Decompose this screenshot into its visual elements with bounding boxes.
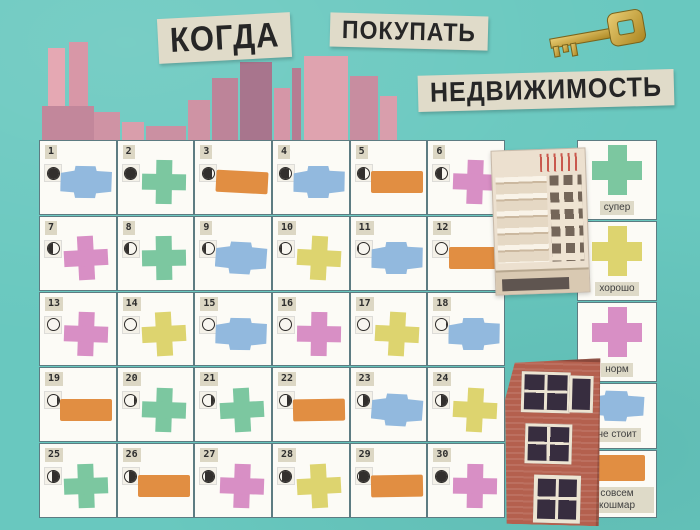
day-cell: 4 [273,141,349,214]
moon-phase-icon [123,392,139,408]
title-word-kogda: КОГДА [157,12,292,64]
day-cell: 27 [195,444,271,517]
skyline-building [350,76,378,142]
skyline-building [380,96,397,142]
skyline-building [122,122,144,142]
day-cell: 26 [118,444,194,517]
house-window [521,371,571,414]
rating-shape-cross [374,311,420,357]
moon-phase-icon [356,241,372,257]
key-icon [541,0,654,79]
moon-phase-icon [356,165,372,181]
moon-phase-icon [200,241,216,257]
day-cell: 3 [195,141,271,214]
moon-phase-icon [278,392,294,408]
day-cell: 19 [40,368,116,441]
moon-phase-icon [278,468,294,484]
day-cell: 14 [118,293,194,366]
moon-phase-icon [356,317,372,333]
legend-label: хорошо [595,282,638,296]
rating-shape-cross [141,387,187,433]
day-number: 4 [278,145,290,159]
skyline-building [212,78,238,142]
moon-phase-icon [45,317,61,333]
moon-phase-icon [123,317,139,333]
rating-shape-rect [60,399,112,421]
legend-label: не стоит [593,428,640,442]
moon-phase-icon [278,165,294,181]
moon-phase-icon [433,317,449,333]
day-cell: 1 [40,141,116,214]
rating-shape-blob [60,165,113,200]
skyline-building [188,100,210,142]
rating-shape-cross [63,235,109,281]
moon-phase-icon [200,468,216,484]
day-cell: 18 [428,293,504,366]
moon-phase-icon [433,392,449,408]
skyline-building [42,106,94,142]
moon-phase-icon [200,165,216,181]
rating-shape-cross [64,311,110,357]
moon-phase-icon [433,165,449,181]
rating-shape-cross [592,226,642,276]
day-cell: 28 [273,444,349,517]
house-window [533,474,581,524]
rating-shape-blob [215,317,268,352]
day-cell: 24 [428,368,504,441]
moon-phase-icon [200,317,216,333]
moon-phase-icon [123,468,139,484]
moon-phase-icon [45,392,61,408]
legend-label: супер [600,201,635,215]
building-ground-floor [496,267,590,294]
legend-label: норм [601,363,633,377]
day-cell: 7 [40,217,116,290]
moon-phase-icon [356,468,372,484]
day-number: 2 [123,145,135,159]
calendar-grid: 1234567891011121314151617181920212223242… [40,141,504,517]
rating-shape-rect [293,398,345,421]
day-cell: 17 [351,293,427,366]
building-storefront [502,277,569,291]
rating-shape-cross [297,312,342,357]
poster: КОГДА ПОКУПАТЬ НЕДВИЖИМОСТЬ 123456789101… [0,0,700,530]
day-number: 5 [356,145,368,159]
rating-shape-rect [449,247,501,269]
day-cell: 5 [351,141,427,214]
rating-shape-blob [292,164,346,200]
house-window [525,423,573,464]
moon-phase-icon [433,241,449,257]
rating-shape-blob [215,241,268,276]
title-word-nedvizhimost: НЕДВИЖИМОСТЬ [418,69,675,112]
moon-phase-icon [45,241,61,257]
moon-phase-icon [278,241,294,257]
house-window [569,376,594,413]
rating-shape-cross [296,235,342,281]
day-cell: 22 [273,368,349,441]
rating-shape-cross [592,145,642,195]
moon-phase-icon [45,468,61,484]
moon-phase-icon [433,468,449,484]
skyline-building [240,62,272,142]
rating-shape-cross [296,462,342,508]
day-cell: 21 [195,368,271,441]
title-word-pokupat: ПОКУПАТЬ [330,12,489,50]
moon-phase-icon [356,392,372,408]
skyline-building [94,112,120,142]
rating-shape-blob [370,240,424,276]
day-number: 6 [433,145,445,159]
brick-house-photo [502,356,603,526]
day-number: 7 [45,221,57,235]
rating-shape-cross [142,236,187,281]
day-cell: 11 [351,217,427,290]
day-number: 1 [45,145,57,159]
day-number: 8 [123,221,135,235]
skyline-building [146,126,186,142]
rating-shape-cross [452,463,497,508]
legend-item: супер [578,141,656,219]
building-sign [540,153,580,172]
moon-phase-icon [278,317,294,333]
day-cell: 23 [351,368,427,441]
rating-shape-cross [219,463,265,509]
skyline-building [304,56,348,142]
day-cell: 25 [40,444,116,517]
rating-shape-cross [219,387,265,433]
skyline-building [292,68,301,142]
rating-shape-rect [215,170,268,195]
rating-shape-cross [141,311,187,357]
rating-shape-blob [448,316,502,352]
rating-shape-cross [142,160,187,205]
rating-shape-rect [138,475,190,497]
apartment-building-photo [490,147,590,295]
moon-phase-icon [123,241,139,257]
rating-shape-cross [64,463,110,509]
day-cell: 8 [118,217,194,290]
moon-phase-icon [200,392,216,408]
moon-phase-icon [45,165,61,181]
rating-shape-rect [371,474,423,497]
skyline-building [274,88,290,142]
rating-shape-cross [592,307,642,357]
building-balconies [495,176,549,264]
day-cell: 13 [40,293,116,366]
rating-shape-blob [370,392,423,427]
day-number: 3 [200,145,212,159]
building-windows [550,175,585,262]
day-cell: 16 [273,293,349,366]
day-cell: 29 [351,444,427,517]
day-cell: 10 [273,217,349,290]
rating-shape-rect [371,171,423,193]
day-cell: 30 [428,444,504,517]
day-cell: 9 [195,217,271,290]
day-cell: 20 [118,368,194,441]
day-cell: 15 [195,293,271,366]
rating-shape-cross [452,387,498,433]
day-cell: 2 [118,141,194,214]
moon-phase-icon [123,165,139,181]
day-number: 9 [200,221,212,235]
